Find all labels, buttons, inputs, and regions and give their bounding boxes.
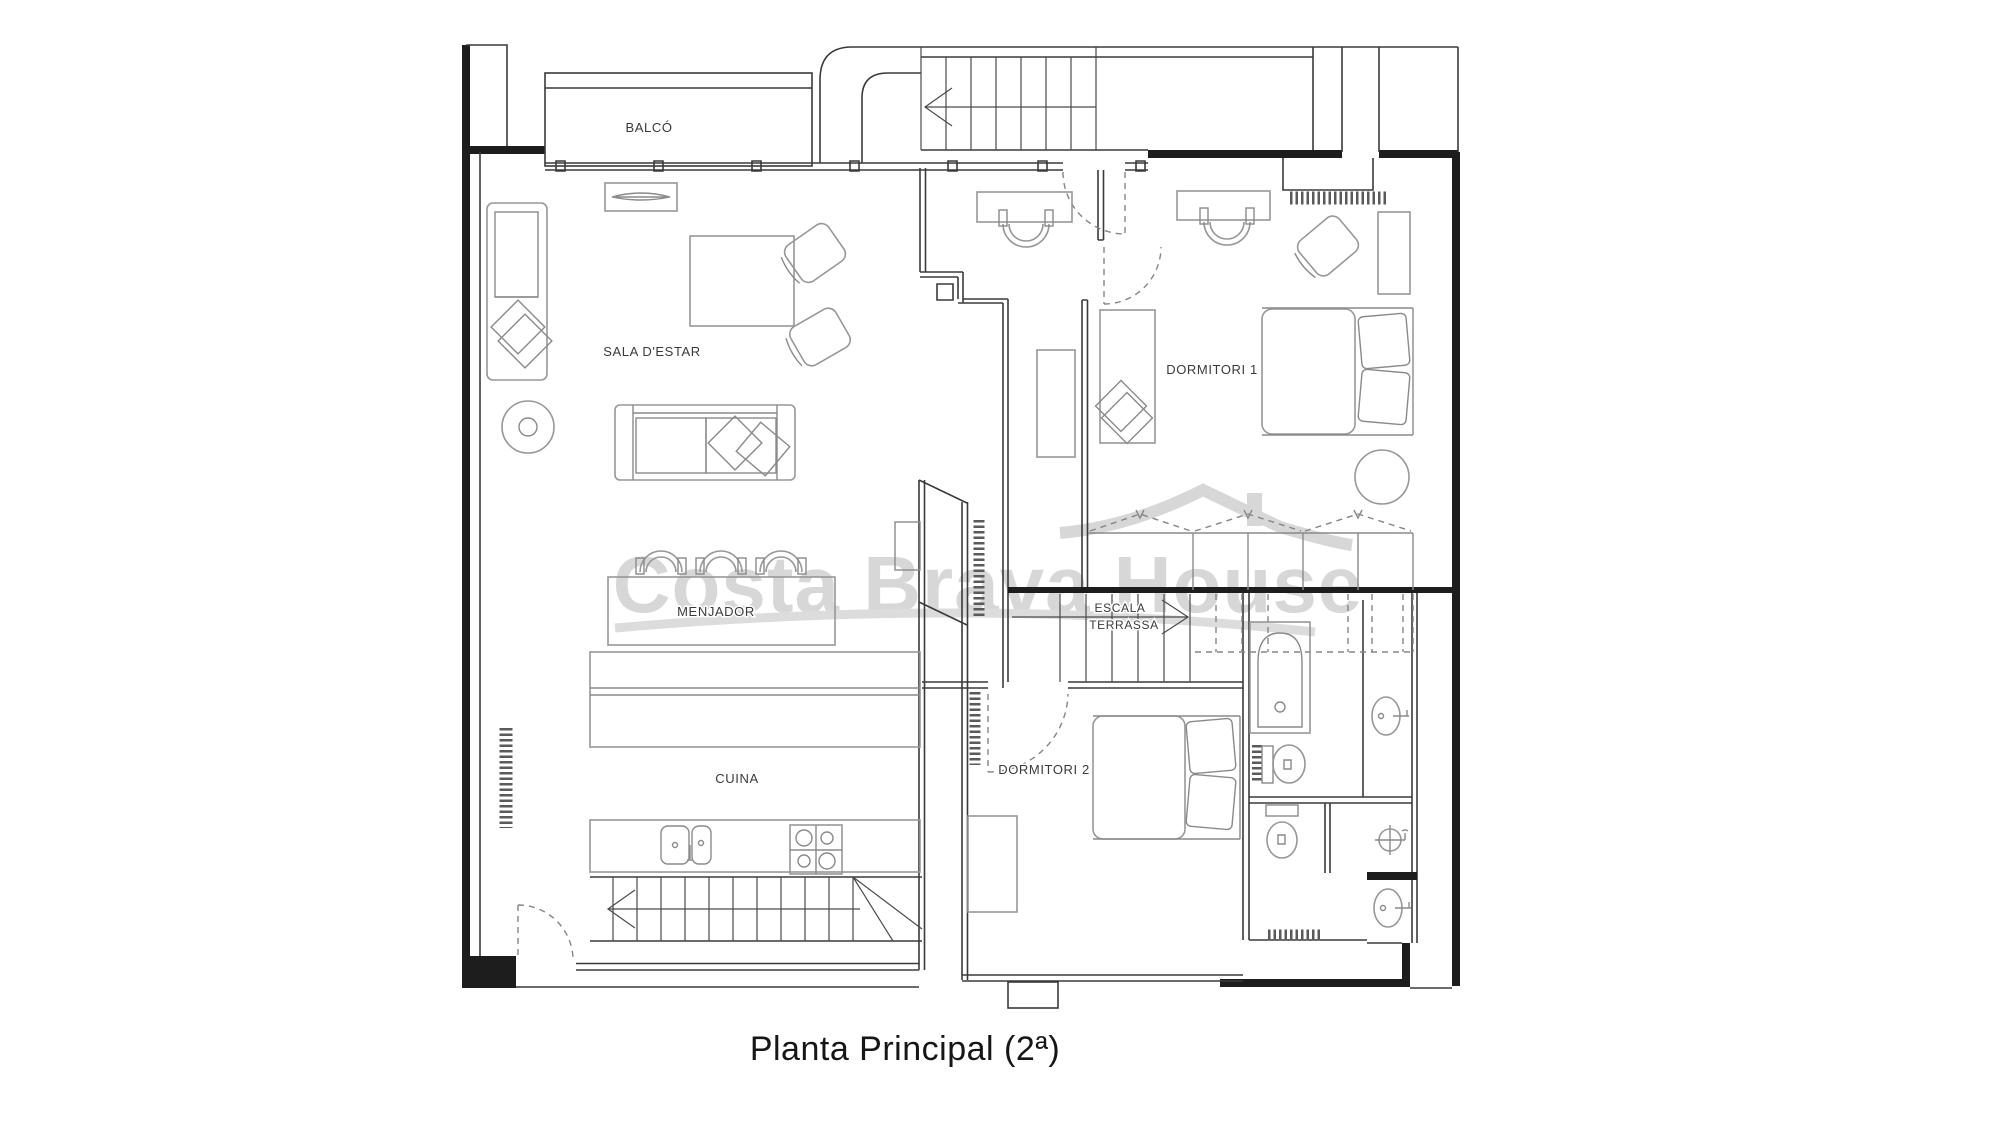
toilet-2 [1266, 805, 1298, 858]
room-label-menjador: MENJADOR [677, 604, 755, 619]
room-label-balco: BALCÓ [625, 120, 672, 135]
bench-dorm1 [1096, 310, 1155, 443]
watermark-chimney-icon [1247, 493, 1262, 526]
bathroom-top [1250, 622, 1409, 783]
stool-dorm1 [1355, 450, 1409, 504]
toilet-1 [1262, 745, 1305, 783]
sink-2 [1374, 889, 1411, 927]
armchair-dorm1 [1289, 212, 1362, 283]
floor-plan: Costa Brava House [0, 0, 2000, 1125]
desk-dorm1 [1177, 191, 1270, 220]
side-table [502, 401, 554, 453]
room-label-escala-line2: TERRASSA [1089, 618, 1158, 632]
armchair-2 [781, 305, 853, 372]
coffee-table [690, 236, 794, 326]
tv-console [605, 183, 677, 211]
dorm1-furniture [1088, 191, 1413, 590]
room-label-dormitori1: DORMITORI 1 [1166, 362, 1258, 377]
kitchen [590, 652, 922, 941]
top-staircase [921, 47, 1458, 152]
room-labels: BALCÓ SALA D'ESTAR MENJADOR CUINA DORMIT… [603, 120, 1258, 786]
plan-title: Planta Principal (2ª) [0, 1030, 1810, 1069]
dorm2-furniture [968, 716, 1240, 912]
door-dorm2-swing-icon [988, 694, 1068, 772]
room-label-escala-line1: ESCALA [1095, 601, 1146, 615]
door-entry-swing-icon [518, 905, 573, 960]
dresser-dorm2 [968, 816, 1017, 912]
watermark-roof-icon [1060, 490, 1352, 545]
room-label-dormitori2: DORMITORI 2 [998, 762, 1090, 777]
room-label-sala: SALA D'ESTAR [603, 344, 701, 359]
room-label-cuina: CUINA [715, 771, 758, 786]
bed-dorm1 [1262, 308, 1413, 435]
exterior-walls [462, 45, 1458, 988]
kitchen-staircase [590, 877, 922, 941]
bed-dorm2 [1093, 716, 1240, 839]
armchair-1 [776, 220, 849, 289]
desk-hall [977, 192, 1072, 222]
bathroom-bottom [1266, 805, 1411, 927]
shelf-hall [1037, 350, 1075, 457]
sofa-left [487, 203, 552, 380]
stove [790, 825, 842, 874]
bathtub [1250, 622, 1310, 733]
door-dorm1-swing-icon [1104, 247, 1161, 304]
sofa-main [615, 405, 795, 480]
sala-furniture [487, 183, 854, 480]
shelf-dorm1 [1378, 212, 1410, 294]
sink-1 [1372, 697, 1409, 735]
balcony [545, 47, 1148, 171]
floor-plan-page: Costa Brava House [0, 0, 2000, 1125]
hall-furniture [977, 192, 1075, 457]
kitchen-sink [661, 826, 711, 864]
shower [1375, 825, 1408, 855]
